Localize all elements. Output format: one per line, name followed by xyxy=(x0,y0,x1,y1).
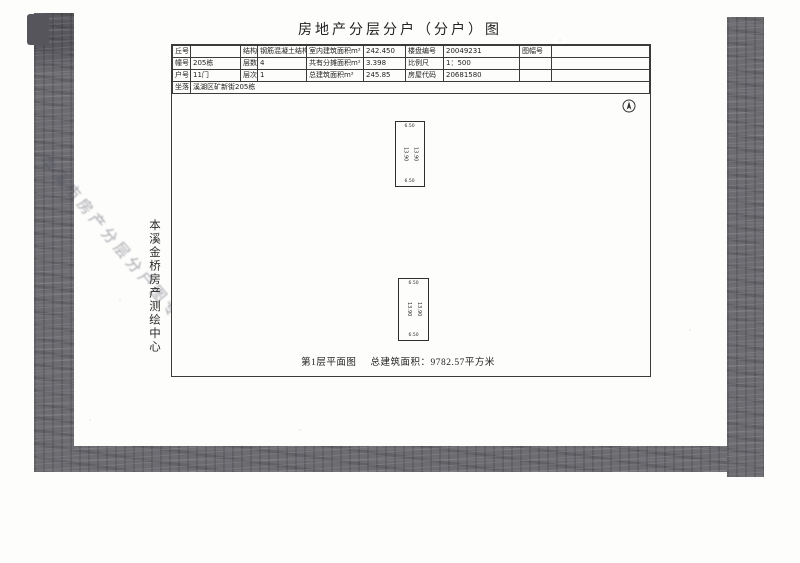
field-label: 户号 xyxy=(173,70,191,82)
dimension-label: 6.50 xyxy=(405,124,415,129)
field-label: 共有分摊面积m² xyxy=(307,58,364,70)
field-value: 1：500 xyxy=(444,58,520,70)
field-label: 室内建筑面积m² xyxy=(307,46,364,58)
dimension-label: 13.90 xyxy=(406,302,411,316)
floor-label: 第1层平面图 xyxy=(301,358,356,368)
field-value xyxy=(191,46,241,58)
field-value: 242.450 xyxy=(364,46,406,58)
field-value xyxy=(552,46,650,58)
field-value: 20681580 xyxy=(444,70,520,82)
total-area-label: 总建筑面积：9782.57平方米 xyxy=(370,358,494,368)
scan-artifact-right-band xyxy=(727,17,764,477)
table-row: 户号 11门 层次 1 总建筑面积m² 245.85 房屋代码 20681580 xyxy=(173,70,650,82)
table-row: 丘号 结构 钢筋混凝土结构 室内建筑面积m² 242.450 楼盘编号 2004… xyxy=(173,46,650,58)
field-label: 图幅号 xyxy=(520,46,552,58)
field-value xyxy=(552,58,650,70)
field-label xyxy=(520,58,552,70)
field-label: 比例尺 xyxy=(406,58,444,70)
surveyor-org-vertical-text: 本溪金桥房产测绘中心 xyxy=(146,219,162,354)
dimension-label: 13.90 xyxy=(403,147,408,161)
plan-frame: 丘号 结构 钢筋混凝土结构 室内建筑面积m² 242.450 楼盘编号 2004… xyxy=(171,44,651,377)
dimension-group: 13.90 13.90 xyxy=(406,302,421,316)
property-info-table: 丘号 结构 钢筋混凝土结构 室内建筑面积m² 242.450 楼盘编号 2004… xyxy=(172,45,650,94)
field-value: 3.398 xyxy=(364,58,406,70)
scan-artifact-left-band xyxy=(34,13,74,471)
unit-outline: 6.50 13.90 13.90 6.50 xyxy=(398,278,429,341)
north-arrow-icon xyxy=(622,98,636,112)
field-label xyxy=(520,70,552,82)
field-value: 245.85 xyxy=(364,70,406,82)
dimension-label: 6.50 xyxy=(408,333,418,338)
field-label: 总建筑面积m² xyxy=(307,70,364,82)
field-value: 205栋 xyxy=(191,58,241,70)
dimension-group: 13.90 13.90 xyxy=(403,147,418,161)
scan-artifact-bottom-band xyxy=(34,446,727,472)
dimension-label: 6.50 xyxy=(405,179,415,184)
field-value xyxy=(552,70,650,82)
field-value: 4 xyxy=(258,58,307,70)
document-title: 房地产分层分户（分户）图 xyxy=(0,19,800,39)
field-label: 层数 xyxy=(241,58,258,70)
field-value: 20049231 xyxy=(444,46,520,58)
unit-outline: 6.50 13.90 13.90 6.50 xyxy=(395,121,425,187)
scanned-page: 房地产分层分户（分户）图 本溪市房产分层分户图专用章 本溪金桥房产测绘中心 丘号… xyxy=(0,0,800,563)
field-label: 结构 xyxy=(241,46,258,58)
plan-caption: 第1层平面图总建筑面积：9782.57平方米 xyxy=(146,354,650,368)
field-value: 溪湖区矿新街205栋 xyxy=(191,82,650,94)
field-value: 1 xyxy=(258,70,307,82)
field-label: 楼盘编号 xyxy=(406,46,444,58)
table-row-address: 坐落 溪湖区矿新街205栋 xyxy=(173,82,650,94)
field-label: 丘号 xyxy=(173,46,191,58)
dimension-label: 6.50 xyxy=(408,281,418,286)
field-label: 房屋代码 xyxy=(406,70,444,82)
field-value: 11门 xyxy=(191,70,241,82)
table-row: 幢号 205栋 层数 4 共有分摊面积m² 3.398 比例尺 1：500 xyxy=(173,58,650,70)
field-label: 坐落 xyxy=(173,82,191,94)
dimension-label: 13.90 xyxy=(413,147,418,161)
field-label: 层次 xyxy=(241,70,258,82)
dimension-label: 13.90 xyxy=(416,302,421,316)
field-label: 幢号 xyxy=(173,58,191,70)
field-value: 钢筋混凝土结构 xyxy=(258,46,307,58)
